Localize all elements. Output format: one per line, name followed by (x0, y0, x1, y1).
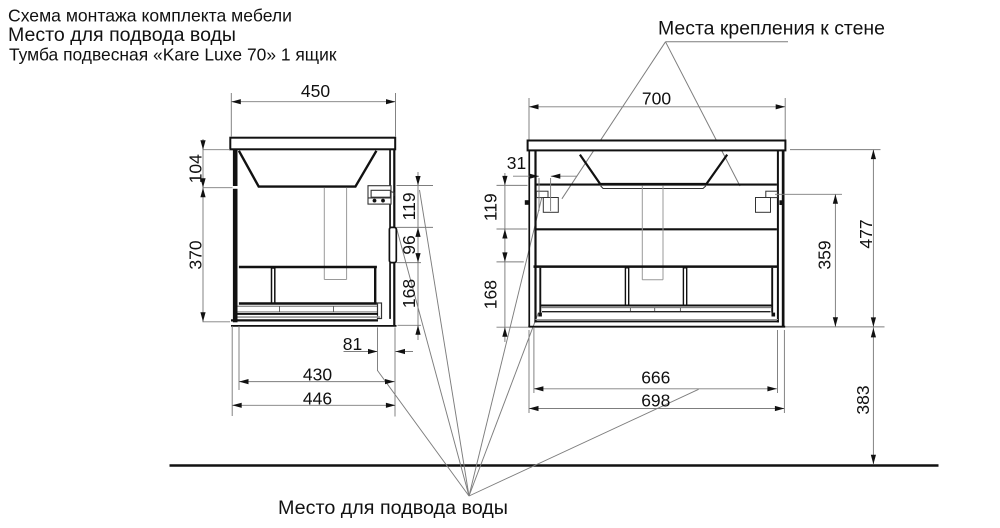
svg-text:383: 383 (853, 385, 873, 414)
svg-text:700: 700 (642, 88, 671, 108)
svg-text:81: 81 (343, 334, 362, 354)
svg-text:31: 31 (507, 153, 526, 173)
svg-text:96: 96 (399, 235, 419, 254)
svg-text:446: 446 (303, 388, 332, 408)
svg-text:477: 477 (856, 219, 876, 248)
svg-text:Схема монтажа комплекта мебели: Схема монтажа комплекта мебели (8, 5, 292, 25)
svg-text:666: 666 (641, 368, 670, 388)
svg-text:119: 119 (399, 192, 419, 220)
svg-text:Тумба подвесная «Kare Luxe 70»: Тумба подвесная «Kare Luxe 70» 1 ящик (9, 44, 337, 64)
svg-text:Место для подвода воды: Место для подвода воды (8, 24, 236, 46)
svg-text:450: 450 (301, 81, 330, 101)
svg-text:119: 119 (480, 193, 500, 221)
svg-text:Места крепления к стене: Места крепления к стене (658, 19, 885, 40)
svg-text:168: 168 (399, 279, 419, 308)
svg-text:430: 430 (303, 365, 332, 385)
svg-text:168: 168 (480, 280, 500, 309)
svg-text:359: 359 (815, 240, 835, 269)
svg-text:370: 370 (186, 240, 206, 269)
svg-text:698: 698 (641, 391, 670, 411)
svg-text:104: 104 (186, 154, 206, 183)
svg-text:Место для подвода воды: Место для подвода воды (278, 498, 508, 519)
